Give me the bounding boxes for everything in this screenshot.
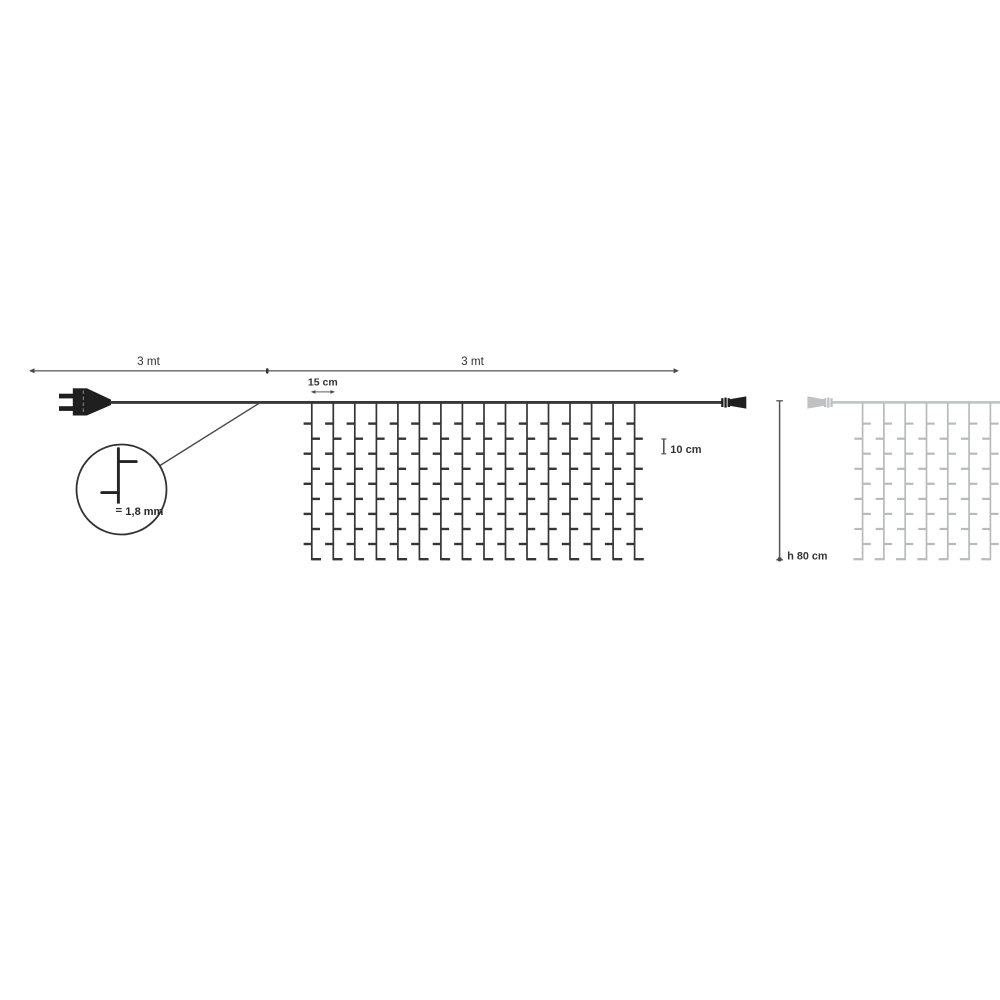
svg-text:1,8 mm: 1,8 mm [125, 506, 163, 518]
svg-text:3 mt: 3 mt [461, 355, 484, 368]
svg-text:15 cm: 15 cm [308, 377, 338, 389]
svg-text:3 mt: 3 mt [137, 355, 160, 368]
svg-text:10 cm: 10 cm [670, 444, 701, 456]
svg-text:h 80 cm: h 80 cm [787, 550, 827, 562]
